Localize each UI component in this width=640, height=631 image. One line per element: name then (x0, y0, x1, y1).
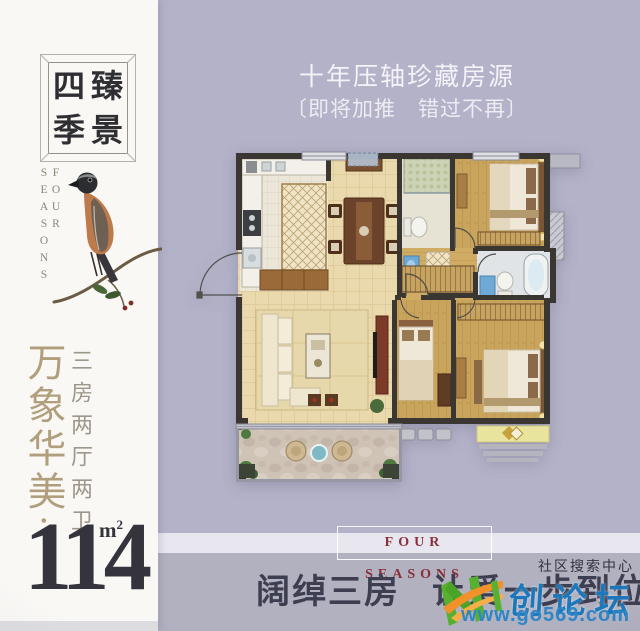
flue (348, 153, 378, 166)
seal-char-1: 四 (53, 70, 85, 102)
seal-char-4: 景 (91, 114, 123, 146)
panel-bottom-fade (0, 621, 158, 631)
left-panel: 四 臻 季 景 FOUR SEASONS 万象华美· 三房两厅两卫 (0, 0, 158, 631)
living-room (256, 310, 388, 413)
watermark-site-url: www.go569.com (461, 604, 630, 627)
seal-char-2: 臻 (91, 70, 123, 102)
seal-characters: 四 臻 季 景 (50, 64, 126, 152)
area-unit: m2 (99, 517, 123, 543)
promo-headline: 十年压轴珍藏房源 (187, 57, 627, 93)
brand-seal: 四 臻 季 景 (40, 54, 136, 162)
area-figure: 114 m2 (22, 508, 152, 618)
floor-plan (190, 148, 590, 493)
tagline-part1: 阔绰三房 (256, 574, 400, 611)
area-value: 114 (24, 508, 146, 605)
area-unit-exponent: 2 (117, 517, 124, 532)
four-seasons-band-text: FOUR SEASONS (337, 526, 492, 560)
poster-canvas: 十年压轴珍藏房源 〔即将加推 错过不再〕 (0, 0, 640, 631)
promo-subheadline: 〔即将加推 错过不再〕 (187, 93, 627, 123)
hallway-cabinet (402, 266, 474, 292)
bird-illustration (50, 156, 162, 324)
seal-char-3: 季 (53, 114, 85, 146)
